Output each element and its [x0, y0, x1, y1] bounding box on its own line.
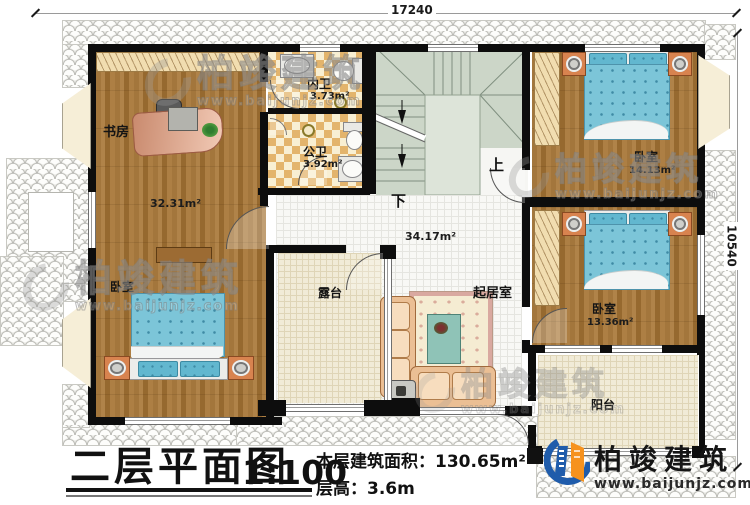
floor-plan-canvas: 书房 32.31m² 内卫 3.73m² 公卫 3.92m² 下 上 34.17…	[0, 0, 750, 505]
wall-terrace-post-bl	[258, 400, 286, 416]
room-label-bedroom1: 卧室	[634, 151, 658, 164]
room-label-bedroom-left: 卧室	[110, 281, 134, 294]
room-area-study: 32.31m²	[150, 198, 201, 210]
wall-bath-right	[362, 44, 376, 194]
railing-terrace-right	[384, 259, 392, 400]
room-area-hall: 34.17m²	[405, 231, 456, 243]
railing-terrace-bottom	[286, 404, 364, 412]
nightstand	[562, 212, 586, 236]
desk-monitor	[168, 107, 198, 131]
window-living-bottom	[420, 407, 505, 415]
wall-balcony-left-upper	[528, 353, 536, 401]
window-bedroom-left-bottom	[125, 417, 230, 425]
wardrobe-bedroom2	[534, 210, 560, 306]
floor-area-text: 本层建筑面积：130.65m²	[316, 452, 526, 472]
sink-basin	[342, 160, 363, 178]
sink-basin	[284, 57, 310, 74]
sofa-cushion	[418, 372, 450, 400]
room-area-public-bath: 3.92m²	[303, 159, 342, 170]
bay-window-bedroom-left	[62, 298, 91, 388]
tv-cabinet	[156, 247, 212, 263]
title-underline	[66, 488, 312, 492]
logo-bullet	[527, 448, 543, 464]
bed-left-pillow-a	[138, 361, 178, 377]
nightstand	[562, 52, 586, 76]
window-left-wing	[88, 192, 96, 248]
brand-url: www.baijunjz.com	[594, 477, 750, 491]
room-label-study: 书房	[103, 126, 129, 140]
fireplace-core	[396, 386, 406, 396]
window-top-stairs	[428, 44, 478, 52]
desk-plant	[202, 123, 218, 137]
window-bedroom2-bottom-b	[612, 345, 662, 353]
room-label-balcony: 阳台	[591, 399, 615, 412]
window-bedroom2-right	[697, 235, 705, 315]
wall-terrace-post-br	[364, 400, 388, 416]
title-underline-thin	[66, 495, 312, 497]
room-area-bedroom2: 13.36m²	[587, 317, 633, 328]
dimension-width-label: 17240	[388, 3, 436, 17]
wall-terrace-top	[266, 245, 346, 253]
wall-balcony-right	[699, 355, 705, 453]
room-label-bedroom2: 卧室	[592, 303, 616, 316]
coffee-table	[427, 314, 461, 364]
roof-tiles-left-corner	[0, 256, 64, 346]
wall-study-bath-upper	[260, 44, 268, 82]
room-label-inner-bath: 内卫	[307, 78, 331, 91]
window-top-bath	[300, 44, 340, 52]
wardrobe-bedroom1	[534, 52, 560, 146]
toilet-bowl	[346, 130, 363, 150]
stairs-up-label: 上	[489, 158, 504, 173]
bay-window-study	[62, 83, 91, 169]
stairs-down-label: 下	[391, 194, 406, 209]
wall-bedrooms-separator-horiz	[522, 197, 705, 207]
room-area-bedroom1: 14.13m²	[629, 165, 675, 176]
brand-name: 柏竣建筑	[594, 446, 734, 474]
dimension-line-top	[35, 13, 737, 14]
ceiling-lamp-icon	[302, 124, 315, 137]
wall-living-bottom-left	[386, 398, 420, 416]
dimension-height-label: 10540	[724, 222, 738, 270]
left-wing-skylight	[28, 192, 74, 252]
wall-bedrooms-separator-vert	[522, 44, 530, 170]
room-area-inner-bath: 3.73m²	[310, 91, 349, 102]
sofa-cushion	[452, 372, 484, 400]
wall-bath-bottom	[258, 188, 370, 195]
window-bedroom2-bottom-a	[545, 345, 600, 353]
table-plant	[434, 322, 448, 334]
bay-window-bedroom1	[698, 55, 730, 149]
floor-height-text: 层高：3.6m	[316, 479, 415, 499]
wall-bedroom-terrace	[266, 250, 274, 425]
room-label-terrace: 露台	[318, 287, 342, 300]
roof-tiles-right	[702, 150, 736, 440]
roof-tiles-left-upper	[62, 44, 90, 88]
dimension-tick	[732, 8, 741, 17]
room-label-living: 起居室	[473, 287, 512, 301]
room-label-public-bath: 公卫	[303, 146, 327, 159]
brand-logo-icon	[544, 436, 590, 492]
bed-left-pillow-b	[180, 361, 220, 377]
window-top-bedroom1	[585, 44, 660, 52]
nightstand	[668, 52, 692, 76]
nightstand	[104, 356, 130, 380]
wall-hall-bedroom2	[522, 207, 530, 307]
wall-bath-divider	[268, 108, 364, 114]
toilet-bowl	[333, 61, 354, 81]
study-closet	[96, 52, 260, 72]
roof-tiles-right-upper	[704, 24, 736, 60]
wall-living-bottom-right	[505, 406, 532, 416]
nightstand	[228, 356, 254, 380]
nightstand	[668, 212, 692, 236]
roof-tiles-left-lower	[62, 384, 90, 428]
